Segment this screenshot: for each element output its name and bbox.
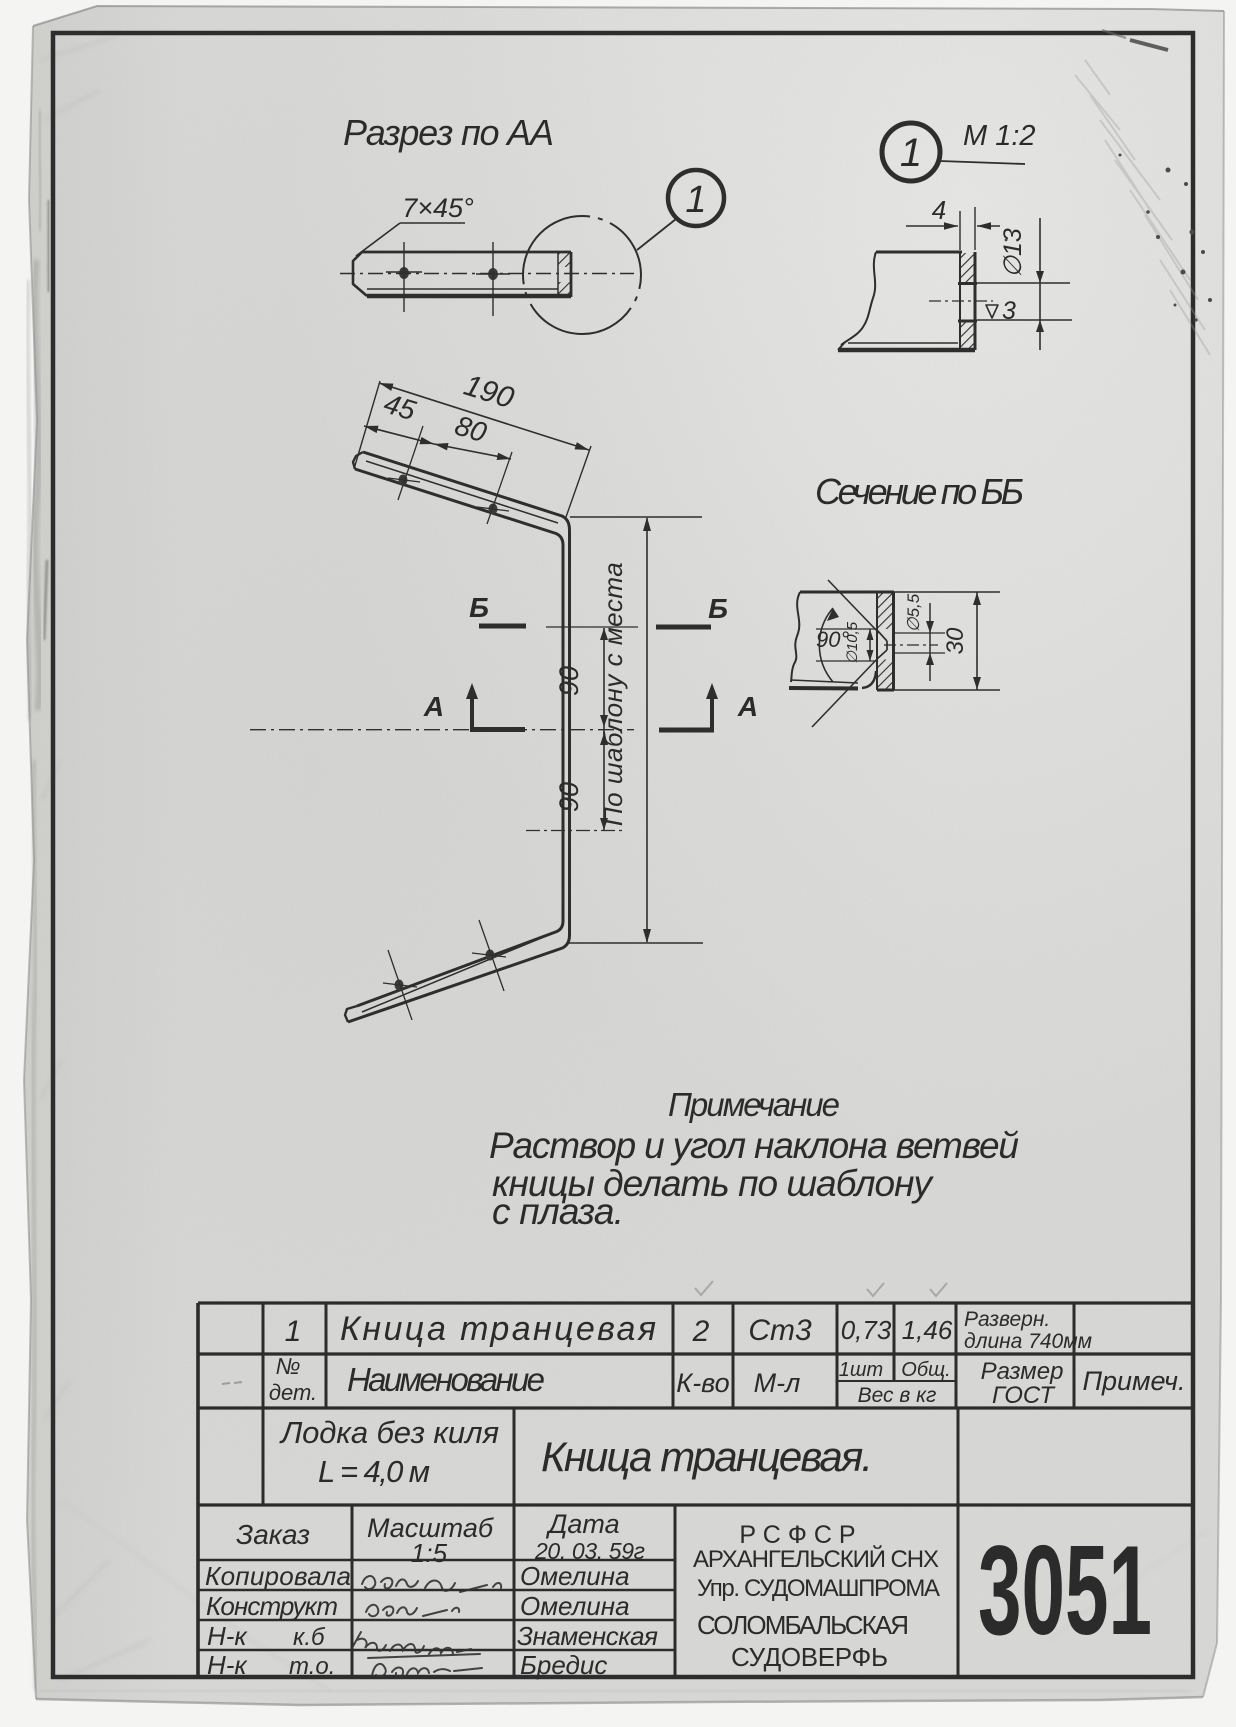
svg-text:Б: Б	[708, 593, 728, 624]
svg-text:По шаблону с места: По шаблону с места	[598, 562, 628, 826]
svg-text:Омелина: Омелина	[520, 1561, 630, 1591]
svg-text:Упр. СУДОМАШПРОМА: Упр. СУДОМАШПРОМА	[697, 1575, 940, 1602]
svg-text:1: 1	[900, 131, 922, 175]
svg-text:М 1:2: М 1:2	[963, 120, 1036, 152]
svg-text:Лодка без киля: Лодка без киля	[279, 1415, 499, 1450]
svg-text:№: №	[276, 1353, 301, 1379]
svg-text:∅10,5: ∅10,5	[844, 621, 861, 664]
svg-text:Разрез по АА: Разрез по АА	[343, 112, 554, 153]
svg-text:∅13: ∅13	[999, 228, 1027, 278]
svg-text:Кница транцевая: Кница транцевая	[340, 1310, 656, 1348]
svg-text:А: А	[737, 691, 758, 722]
svg-text:4: 4	[932, 195, 946, 225]
svg-text:1: 1	[685, 179, 706, 221]
svg-text:Бредис: Бредис	[520, 1650, 607, 1680]
svg-text:0,73: 0,73	[841, 1315, 892, 1345]
svg-text:длина 740мм: длина 740мм	[964, 1330, 1092, 1353]
svg-text:2: 2	[692, 1315, 710, 1348]
svg-text:3051: 3051	[978, 1519, 1152, 1661]
svg-text:Кница транцевая.: Кница транцевая.	[541, 1433, 873, 1480]
svg-text:Ст3: Ст3	[748, 1314, 812, 1347]
svg-text:Н-к: Н-к	[207, 1621, 248, 1651]
svg-text:Раствор и угол наклона ветвей: Раствор и угол наклона ветвей	[489, 1125, 1019, 1166]
svg-text:Конструкт: Конструкт	[206, 1591, 338, 1621]
svg-text:с плаза.: с плаза.	[492, 1191, 624, 1232]
svg-text:1,46: 1,46	[902, 1315, 953, 1345]
svg-text:Размер: Размер	[981, 1358, 1064, 1385]
svg-text:30: 30	[942, 627, 969, 654]
svg-text:СОЛОМБАЛЬСКАЯ: СОЛОМБАЛЬСКАЯ	[697, 1610, 909, 1640]
svg-text:90: 90	[554, 666, 584, 696]
svg-text:Разверн.: Разверн.	[964, 1308, 1050, 1331]
svg-text:К-во: К-во	[676, 1368, 729, 1398]
svg-text:3: 3	[1002, 297, 1016, 325]
svg-text:Н-к: Н-к	[207, 1650, 248, 1680]
svg-text:Вес в кг: Вес в кг	[858, 1384, 937, 1407]
svg-text:L = 4,0 м: L = 4,0 м	[318, 1454, 430, 1489]
svg-text:Копировала: Копировала	[205, 1561, 351, 1591]
svg-text:Омелина: Омелина	[520, 1591, 630, 1621]
svg-text:7×45°: 7×45°	[402, 193, 474, 223]
svg-text:Наименование: Наименование	[347, 1361, 545, 1398]
svg-text:1: 1	[285, 1315, 302, 1348]
svg-text:Примеч.: Примеч.	[1082, 1366, 1185, 1396]
svg-text:Дата: Дата	[545, 1509, 619, 1539]
svg-text:дет.: дет.	[269, 1380, 317, 1405]
svg-text:АРХАНГЕЛЬСКИЙ СНХ: АРХАНГЕЛЬСКИЙ СНХ	[693, 1545, 939, 1573]
svg-text:Сечение по ББ: Сечение по ББ	[815, 471, 1024, 512]
svg-text:т.о.: т.о.	[289, 1653, 335, 1680]
svg-text:1шт: 1шт	[839, 1359, 883, 1381]
svg-text:Заказ: Заказ	[236, 1519, 310, 1550]
svg-text:Примечание: Примечание	[668, 1086, 840, 1123]
svg-text:к.б: к.б	[293, 1624, 326, 1651]
svg-text:1:5: 1:5	[411, 1538, 448, 1568]
svg-text:Общ.: Общ.	[901, 1359, 950, 1381]
svg-text:Знаменская: Знаменская	[517, 1621, 658, 1651]
svg-text:СУДОВЕРФЬ: СУДОВЕРФЬ	[731, 1642, 888, 1672]
svg-text:РСФСР: РСФСР	[739, 1521, 862, 1549]
svg-text:ГОСТ: ГОСТ	[992, 1382, 1056, 1409]
svg-text:∅5,5: ∅5,5	[904, 593, 923, 632]
svg-text:А: А	[423, 691, 444, 722]
svg-text:М-л: М-л	[754, 1368, 801, 1398]
svg-text:90: 90	[554, 782, 584, 812]
svg-text:Б: Б	[469, 592, 489, 623]
